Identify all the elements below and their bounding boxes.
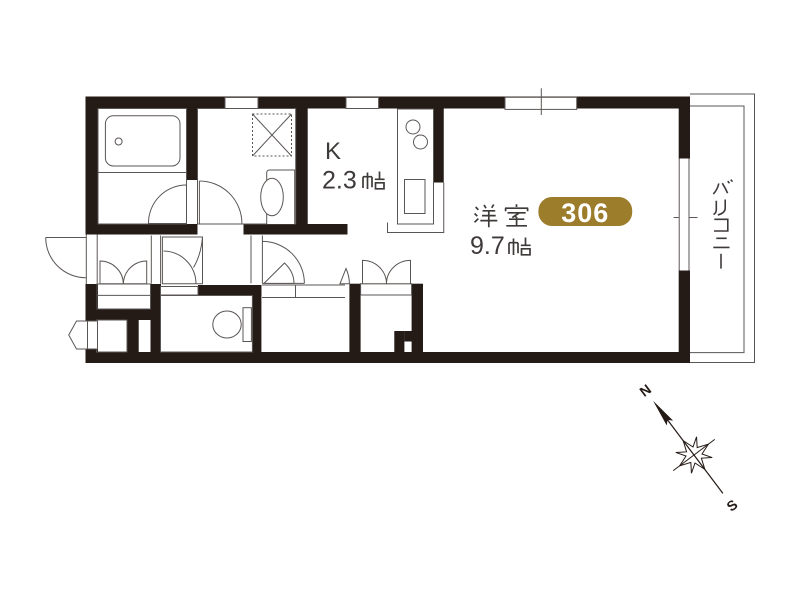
- svg-text:K: K: [325, 138, 341, 165]
- svg-text:306: 306: [561, 198, 609, 228]
- svg-text:2.3: 2.3: [322, 167, 357, 195]
- svg-text:9.7: 9.7: [470, 232, 505, 260]
